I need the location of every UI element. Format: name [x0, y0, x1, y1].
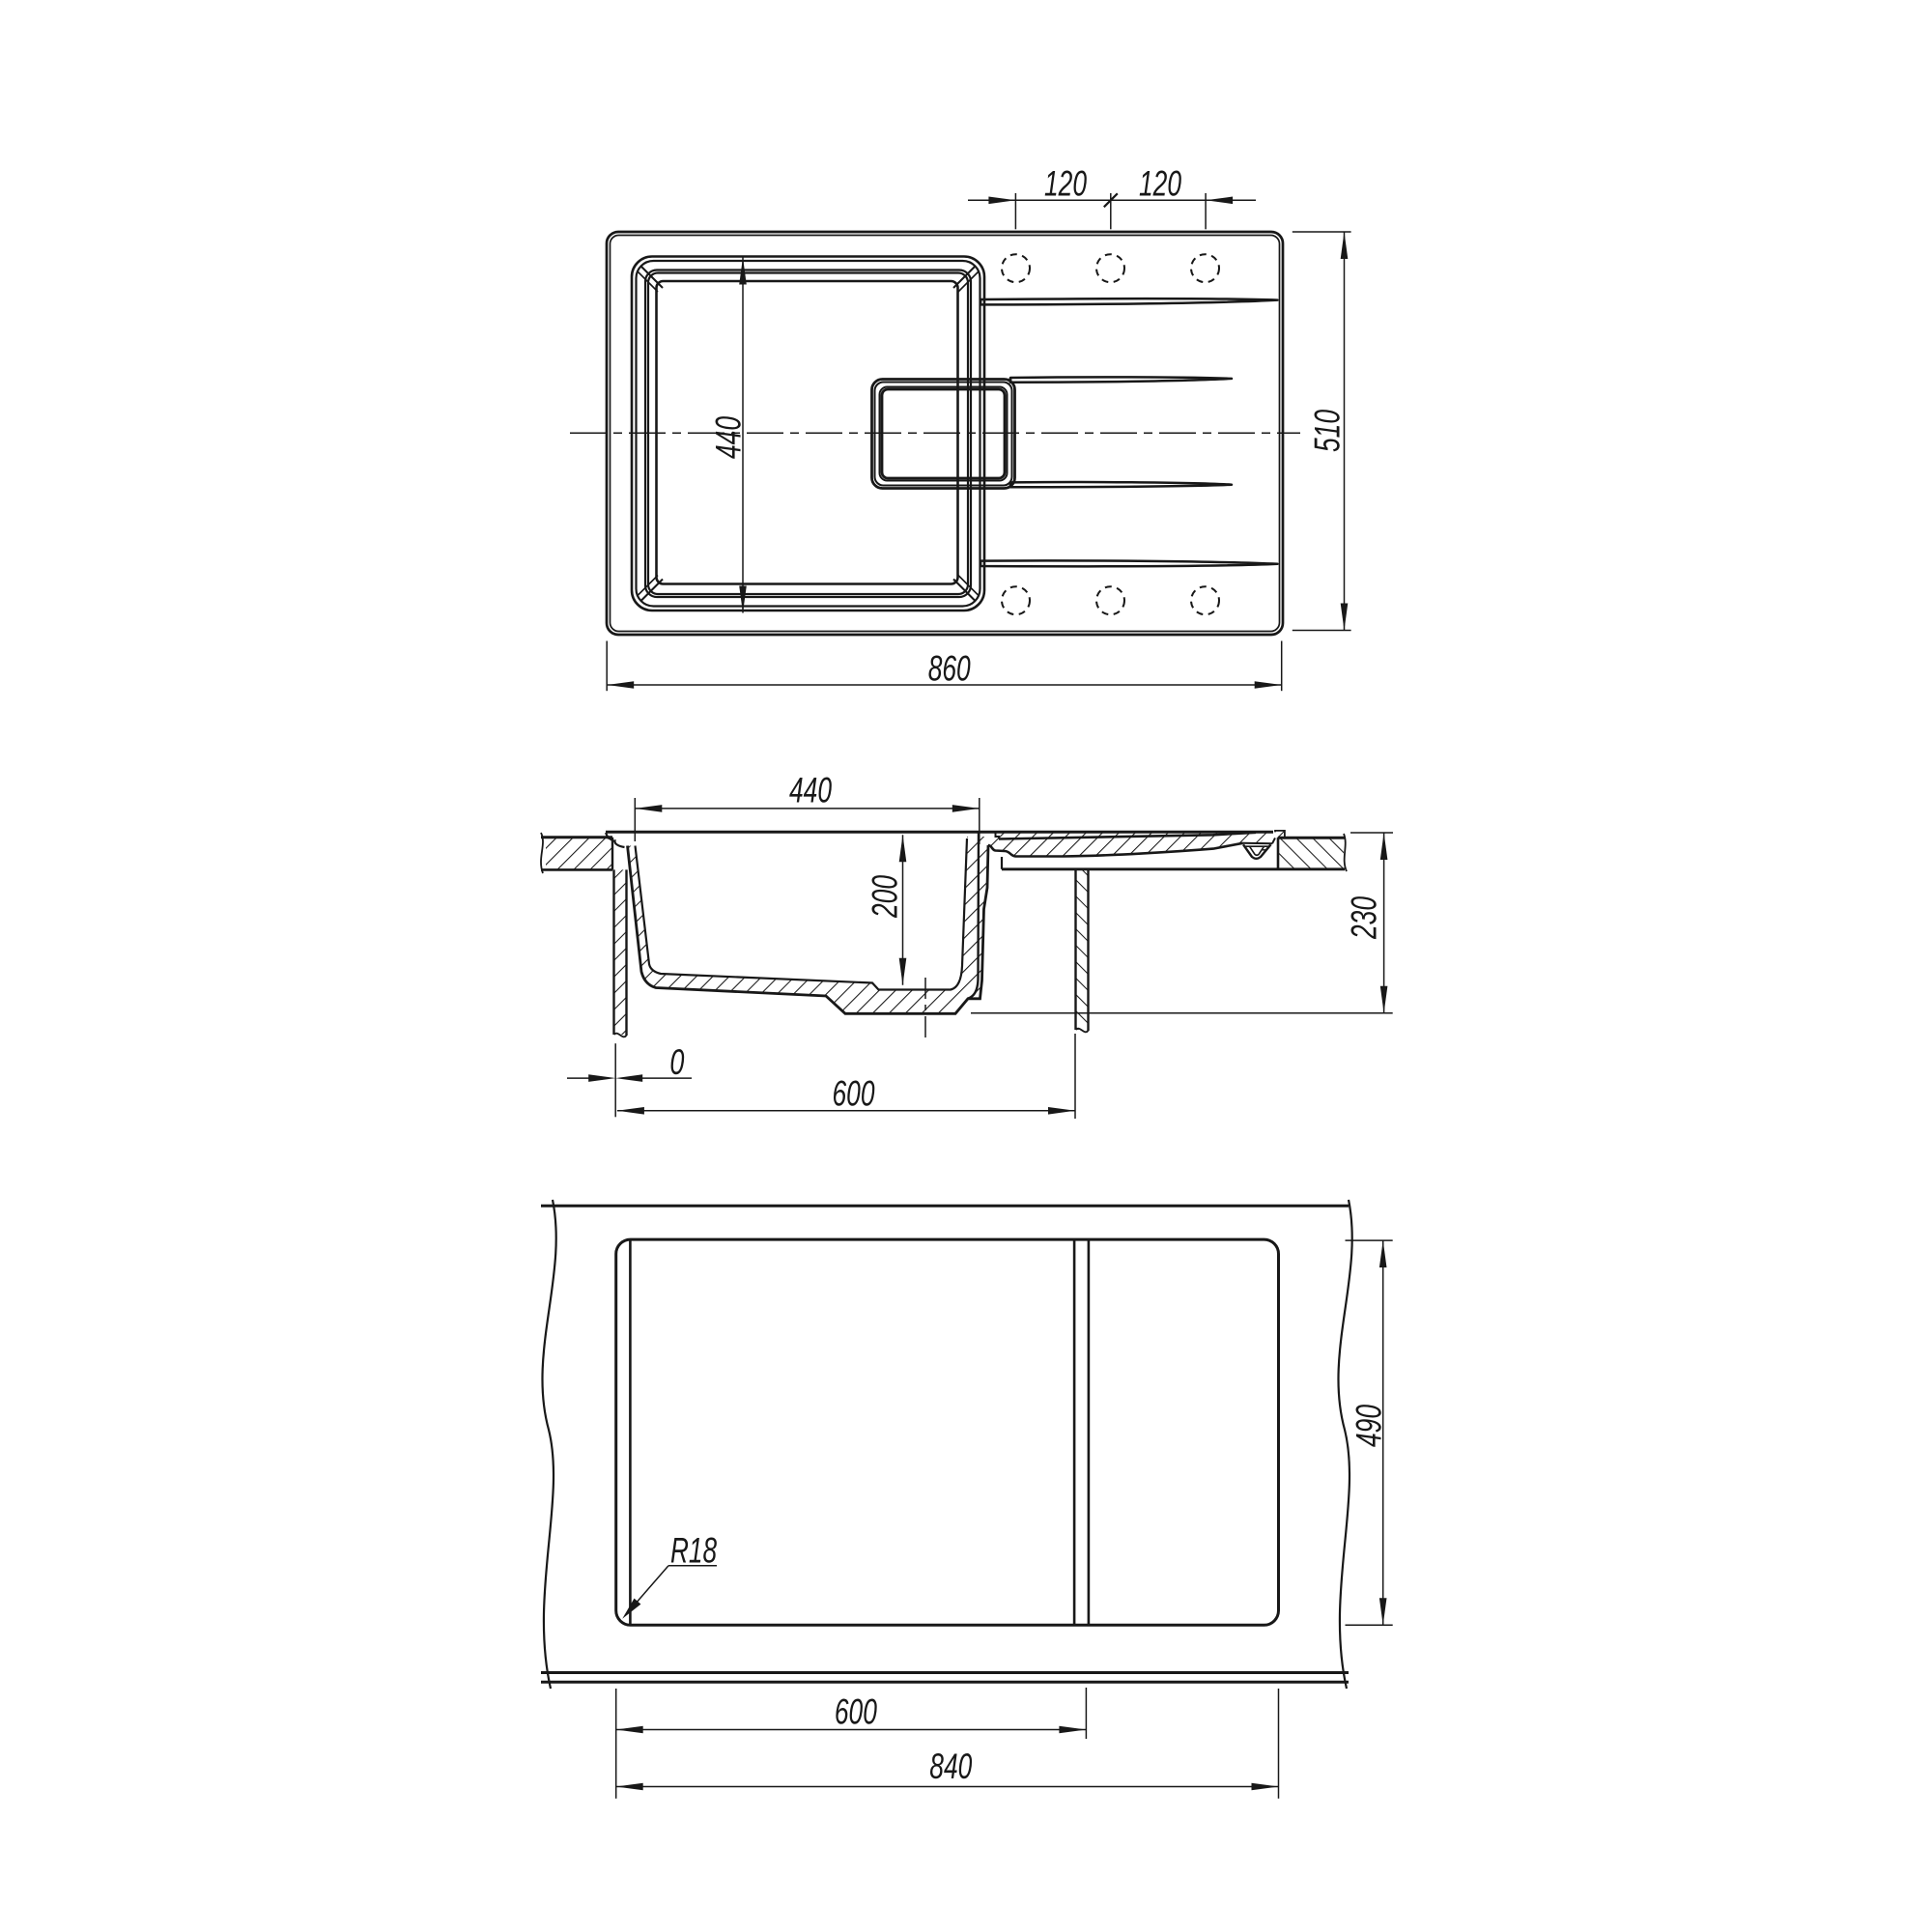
svg-text:R18: R18 — [670, 1531, 717, 1571]
svg-text:510: 510 — [1307, 410, 1347, 452]
svg-text:440: 440 — [789, 771, 832, 810]
svg-text:440: 440 — [709, 416, 749, 459]
svg-text:0: 0 — [669, 1042, 684, 1082]
svg-text:120: 120 — [1044, 164, 1087, 204]
svg-text:490: 490 — [1350, 1405, 1389, 1447]
svg-text:120: 120 — [1139, 164, 1181, 204]
svg-text:200: 200 — [866, 875, 905, 919]
svg-text:860: 860 — [928, 649, 971, 689]
svg-text:600: 600 — [835, 1691, 877, 1731]
svg-text:600: 600 — [833, 1074, 875, 1114]
svg-text:840: 840 — [929, 1747, 972, 1786]
svg-text:230: 230 — [1345, 896, 1384, 940]
